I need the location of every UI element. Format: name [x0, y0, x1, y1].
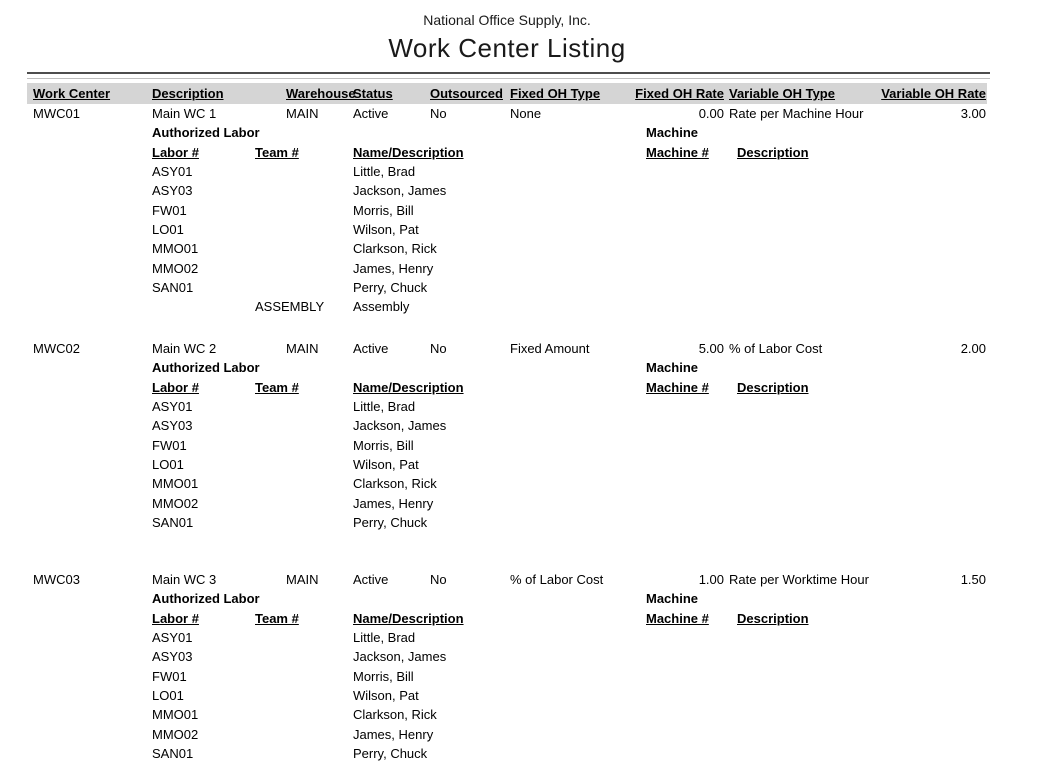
labor-no: MMO01	[152, 239, 198, 258]
fixed-oh-type-value: Fixed Amount	[510, 339, 590, 358]
work-center-description: Main WC 1	[152, 104, 216, 123]
status-value: Active	[353, 570, 388, 589]
variable-oh-rate-value: 2.00	[872, 339, 986, 358]
sub-header-row: Labor # Team # Name/Description Machine …	[0, 609, 1047, 628]
labor-row: LO01 Wilson, Pat	[0, 686, 1047, 705]
labor-no: SAN01	[152, 744, 193, 763]
fixed-oh-rate-value: 0.00	[610, 104, 724, 123]
labor-no-header: Labor #	[152, 609, 199, 628]
outsourced-value: No	[430, 339, 447, 358]
labor-row: MMO02 James, Henry	[0, 259, 1047, 278]
labor-no: FW01	[152, 436, 187, 455]
column-header-fixed-oh-type: Fixed OH Type	[510, 83, 600, 104]
labor-no-header: Labor #	[152, 143, 199, 162]
labor-name: Perry, Chuck	[353, 513, 427, 532]
labor-row: MMO02 James, Henry	[0, 494, 1047, 513]
fixed-oh-rate-value: 1.00	[610, 570, 724, 589]
column-header-row: Work Center Description Warehouse Status…	[0, 83, 1047, 104]
labor-name: Clarkson, Rick	[353, 239, 437, 258]
work-center-row: MWC03 Main WC 3 MAIN Active No % of Labo…	[0, 570, 1047, 589]
labor-no: SAN01	[152, 278, 193, 297]
labor-name: Little, Brad	[353, 162, 415, 181]
machine-no-header: Machine #	[646, 378, 709, 397]
machine-description-header: Description	[737, 143, 809, 162]
column-header-fixed-oh-rate: Fixed OH Rate	[610, 83, 724, 104]
labor-row: LO01 Wilson, Pat	[0, 220, 1047, 239]
labor-row: ASY03 Jackson, James	[0, 416, 1047, 435]
labor-row: MMO01 Clarkson, Rick	[0, 474, 1047, 493]
labor-no: LO01	[152, 455, 184, 474]
work-center-block: MWC02 Main WC 2 MAIN Active No Fixed Amo…	[0, 339, 1047, 532]
variable-oh-type-value: % of Labor Cost	[729, 339, 822, 358]
section-label-row: Authorized Labor Machine	[0, 589, 1047, 608]
work-center-code: MWC01	[33, 104, 80, 123]
labor-row: MMO01 Clarkson, Rick	[0, 705, 1047, 724]
sub-header-row: Labor # Team # Name/Description Machine …	[0, 143, 1047, 162]
labor-row: LO01 Wilson, Pat	[0, 455, 1047, 474]
authorized-labor-label: Authorized Labor	[152, 358, 260, 377]
authorized-labor-label: Authorized Labor	[152, 123, 260, 142]
labor-no: MMO02	[152, 494, 198, 513]
labor-name: Clarkson, Rick	[353, 474, 437, 493]
labor-name: Wilson, Pat	[353, 686, 419, 705]
labor-row: MMO01 Clarkson, Rick	[0, 239, 1047, 258]
work-center-description: Main WC 3	[152, 570, 216, 589]
machine-label: Machine	[646, 589, 698, 608]
labor-row: ASY01 Little, Brad	[0, 162, 1047, 181]
labor-row: SAN01 Perry, Chuck	[0, 513, 1047, 532]
section-label-row: Authorized Labor Machine	[0, 358, 1047, 377]
variable-oh-rate-value: 1.50	[872, 570, 986, 589]
labor-no: ASY03	[152, 647, 192, 666]
labor-name: Perry, Chuck	[353, 744, 427, 763]
labor-no: MMO02	[152, 725, 198, 744]
fixed-oh-type-value: % of Labor Cost	[510, 570, 603, 589]
labor-name: James, Henry	[353, 494, 433, 513]
outsourced-value: No	[430, 570, 447, 589]
name-description-header: Name/Description	[353, 378, 464, 397]
company-name: National Office Supply, Inc.	[27, 12, 987, 28]
outsourced-value: No	[430, 104, 447, 123]
work-center-row: MWC01 Main WC 1 MAIN Active No None 0.00…	[0, 104, 1047, 123]
team-no-header: Team #	[255, 143, 299, 162]
header-rule-light	[27, 78, 990, 79]
labor-row: ASY01 Little, Brad	[0, 628, 1047, 647]
name-description-header: Name/Description	[353, 609, 464, 628]
machine-no-header: Machine #	[646, 143, 709, 162]
report-title: Work Center Listing	[27, 33, 987, 64]
fixed-oh-type-value: None	[510, 104, 541, 123]
labor-no: ASY01	[152, 397, 192, 416]
labor-name: Wilson, Pat	[353, 455, 419, 474]
labor-no: MMO02	[152, 259, 198, 278]
labor-row: FW01 Morris, Bill	[0, 436, 1047, 455]
team-no-header: Team #	[255, 378, 299, 397]
machine-description-header: Description	[737, 378, 809, 397]
labor-name: Little, Brad	[353, 397, 415, 416]
column-header-work-center: Work Center	[33, 83, 110, 104]
labor-name: Morris, Bill	[353, 201, 414, 220]
labor-no: SAN01	[152, 513, 193, 532]
column-header-description: Description	[152, 83, 224, 104]
machine-description-header: Description	[737, 609, 809, 628]
report-page: National Office Supply, Inc. Work Center…	[0, 0, 1047, 783]
fixed-oh-rate-value: 5.00	[610, 339, 724, 358]
labor-no: ASY01	[152, 162, 192, 181]
warehouse-value: MAIN	[286, 570, 319, 589]
labor-name: Little, Brad	[353, 628, 415, 647]
labor-row: ASY01 Little, Brad	[0, 397, 1047, 416]
labor-name: Morris, Bill	[353, 436, 414, 455]
column-header-outsourced: Outsourced	[430, 83, 503, 104]
labor-no: ASY03	[152, 416, 192, 435]
work-center-block: MWC01 Main WC 1 MAIN Active No None 0.00…	[0, 104, 1047, 317]
status-value: Active	[353, 104, 388, 123]
labor-row: SAN01 Perry, Chuck	[0, 278, 1047, 297]
labor-row: FW01 Morris, Bill	[0, 201, 1047, 220]
column-header-variable-oh-rate: Variable OH Rate	[872, 83, 986, 104]
labor-name: Morris, Bill	[353, 667, 414, 686]
labor-team-row: ASSEMBLY Assembly	[0, 297, 1047, 316]
labor-no: MMO01	[152, 705, 198, 724]
labor-row: FW01 Morris, Bill	[0, 667, 1047, 686]
labor-name: Wilson, Pat	[353, 220, 419, 239]
name-description-header: Name/Description	[353, 143, 464, 162]
work-center-row: MWC02 Main WC 2 MAIN Active No Fixed Amo…	[0, 339, 1047, 358]
machine-no-header: Machine #	[646, 609, 709, 628]
column-header-status: Status	[353, 83, 393, 104]
variable-oh-type-value: Rate per Worktime Hour	[729, 570, 869, 589]
work-center-code: MWC03	[33, 570, 80, 589]
labor-name: Assembly	[353, 297, 409, 316]
labor-no: MMO01	[152, 474, 198, 493]
labor-row: SAN01 Perry, Chuck	[0, 744, 1047, 763]
variable-oh-rate-value: 3.00	[872, 104, 986, 123]
work-center-description: Main WC 2	[152, 339, 216, 358]
labor-row: ASY03 Jackson, James	[0, 647, 1047, 666]
labor-no: FW01	[152, 201, 187, 220]
labor-name: Jackson, James	[353, 647, 446, 666]
variable-oh-type-value: Rate per Machine Hour	[729, 104, 863, 123]
labor-no: ASY03	[152, 181, 192, 200]
sub-header-row: Labor # Team # Name/Description Machine …	[0, 378, 1047, 397]
team-no-header: Team #	[255, 609, 299, 628]
labor-no: ASY01	[152, 628, 192, 647]
header-rule-dark	[27, 72, 990, 74]
labor-no: LO01	[152, 220, 184, 239]
labor-no: FW01	[152, 667, 187, 686]
labor-row: ASY03 Jackson, James	[0, 181, 1047, 200]
authorized-labor-label: Authorized Labor	[152, 589, 260, 608]
column-header-variable-oh-type: Variable OH Type	[729, 83, 835, 104]
labor-name: Jackson, James	[353, 181, 446, 200]
labor-name: James, Henry	[353, 259, 433, 278]
labor-name: Clarkson, Rick	[353, 705, 437, 724]
labor-no: LO01	[152, 686, 184, 705]
labor-no-header: Labor #	[152, 378, 199, 397]
status-value: Active	[353, 339, 388, 358]
machine-label: Machine	[646, 358, 698, 377]
machine-label: Machine	[646, 123, 698, 142]
labor-row: MMO02 James, Henry	[0, 725, 1047, 744]
team-no: ASSEMBLY	[255, 297, 324, 316]
warehouse-value: MAIN	[286, 104, 319, 123]
labor-name: James, Henry	[353, 725, 433, 744]
labor-name: Perry, Chuck	[353, 278, 427, 297]
column-header-warehouse: Warehouse	[286, 83, 356, 104]
work-center-block: MWC03 Main WC 3 MAIN Active No % of Labo…	[0, 570, 1047, 763]
work-center-code: MWC02	[33, 339, 80, 358]
section-label-row: Authorized Labor Machine	[0, 123, 1047, 142]
warehouse-value: MAIN	[286, 339, 319, 358]
labor-name: Jackson, James	[353, 416, 446, 435]
